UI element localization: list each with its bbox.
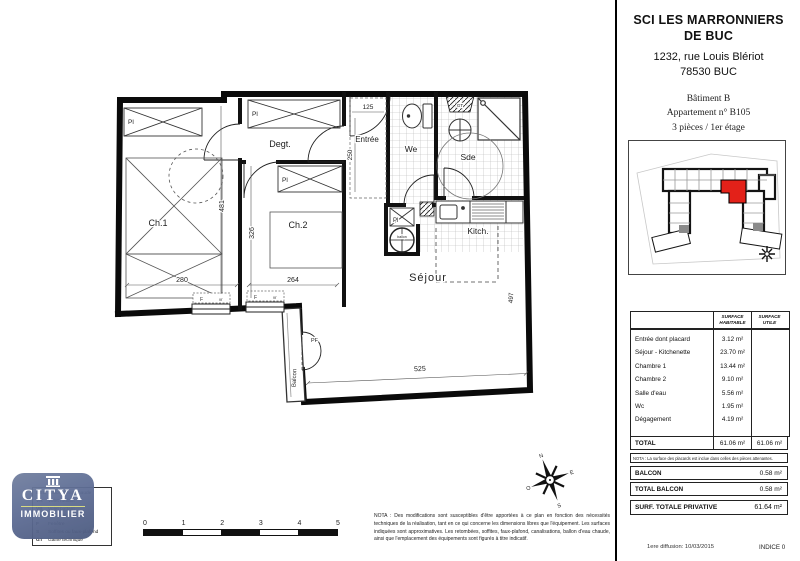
- logo-name: CITYA: [12, 487, 94, 505]
- svg-text:Pl: Pl: [128, 119, 134, 126]
- placards: [124, 100, 414, 226]
- ballon-label: ballon: [397, 235, 407, 239]
- row-habitable: 4.19 m²: [714, 416, 751, 429]
- svg-text:125: 125: [363, 104, 374, 111]
- agency-logo: CITYA IMMOBILIER: [12, 473, 94, 539]
- kitchen-counter: [436, 201, 523, 223]
- col-habitable: SURFACE HABITABLE: [713, 312, 751, 328]
- row-label: Chambre 1: [631, 363, 713, 376]
- room-sde: Sde: [460, 152, 475, 162]
- company-name: SCI LES MARRONNIERS DE BUC: [617, 12, 800, 45]
- surface-table-header: SURFACE HABITABLE SURFACE UTILE: [631, 312, 789, 330]
- svg-text:326: 326: [249, 227, 256, 239]
- logo-subtitle: IMMOBILIER: [12, 509, 94, 519]
- compass-o: O: [526, 485, 532, 492]
- svg-text:Pl: Pl: [282, 177, 288, 184]
- col-utile: SURFACE UTILE: [751, 312, 787, 328]
- surface-table-body: Entrée dont placard Séjour - Kitchenette…: [631, 330, 789, 436]
- svg-text:Pl: Pl: [393, 218, 398, 224]
- row-habitable: 1.95 m²: [714, 403, 751, 416]
- balcony-label: Balcon: [292, 369, 299, 388]
- column-icon: [45, 476, 61, 487]
- compass-s: S: [557, 503, 563, 510]
- surface-table: SURFACE HABITABLE SURFACE UTILE Entrée d…: [630, 311, 790, 437]
- shower: [478, 98, 520, 140]
- privative-row: SURF. TOTALE PRIVATIVE 61.64 m²: [630, 500, 788, 515]
- privative-value: 61.64 m²: [754, 504, 787, 511]
- balcon-label: BALCON: [631, 470, 661, 477]
- highlighted-unit: [721, 180, 746, 203]
- svg-text:497: 497: [508, 292, 515, 303]
- gt-label: GT: [457, 103, 464, 108]
- row-label: Entrée dont placard: [631, 336, 713, 349]
- row-label: Wc: [631, 403, 713, 416]
- svg-text:280: 280: [176, 277, 188, 284]
- indice-label: INDICE 0: [759, 544, 785, 551]
- diffusion-date: 1ere diffusion: 10/03/2015: [647, 544, 714, 550]
- scale-bar-segments: [143, 529, 338, 536]
- svg-text:vr: vr: [273, 295, 277, 300]
- compass-rose: N S E O: [526, 452, 574, 512]
- room-entree: Entrée: [355, 135, 379, 144]
- svg-text:F: F: [200, 297, 203, 303]
- svg-text:264: 264: [287, 277, 299, 284]
- total-balcon-row: TOTAL BALCON 0.58 m²: [630, 482, 788, 496]
- pf-label: PF: [311, 338, 319, 344]
- scale-ticks: 0 1 2 3 4 5: [143, 520, 340, 527]
- row-habitable: 13.44 m²: [714, 363, 751, 376]
- svg-text:525: 525: [414, 366, 426, 374]
- total-balcon-label: TOTAL BALCON: [631, 486, 683, 493]
- room-wc: We: [405, 144, 418, 154]
- location-map: [628, 140, 786, 275]
- table-nota: NOTA : La surface des placards est inclu…: [630, 453, 788, 463]
- svg-text:Pl: Pl: [252, 111, 258, 118]
- floor-plan: GT Balcon PF Pl Pl Pl Pl: [0, 0, 617, 561]
- compass-e: E: [569, 470, 574, 477]
- room-sejour: Séjour: [409, 272, 447, 284]
- total-label: TOTAL: [631, 440, 713, 447]
- row-label: Dégagement: [631, 416, 713, 429]
- entree-placard-zone: [350, 98, 386, 198]
- room-ch1: Ch.1: [148, 218, 167, 228]
- total-balcon-value: 0.58 m²: [760, 486, 787, 493]
- room-degt: Degt.: [269, 139, 291, 149]
- total-utile: 61.06 m²: [751, 437, 787, 449]
- row-habitable: 9.10 m²: [714, 376, 751, 389]
- room-ch2: Ch.2: [288, 220, 307, 230]
- toilet: [403, 104, 433, 128]
- row-label: Salle d'eau: [631, 390, 713, 403]
- logo-divider: [21, 506, 85, 507]
- row-label: Séjour - Kitchenette: [631, 349, 713, 362]
- site-address: 1232, rue Louis Blériot 78530 BUC: [617, 50, 800, 80]
- building-outline: [652, 169, 782, 252]
- plan-disclaimer: NOTA : Des modifications sont susceptibl…: [374, 513, 610, 544]
- row-habitable: 3.12 m²: [714, 336, 751, 349]
- row-utile: [752, 336, 787, 349]
- scale-bar: 0 1 2 3 4 5: [143, 520, 343, 536]
- room-kitch: Kitch.: [467, 226, 488, 236]
- row-habitable: 5.56 m²: [714, 390, 751, 403]
- svg-text:vr: vr: [219, 297, 223, 302]
- svg-text:F: F: [254, 295, 257, 301]
- building-label: Bâtiment B: [617, 92, 800, 106]
- apartment-info: Bâtiment B Appartement n° B105 3 pièces …: [617, 92, 800, 135]
- water-heater: ballon: [390, 228, 414, 252]
- row-label: Chambre 2: [631, 376, 713, 389]
- apartment-label: Appartement n° B105: [617, 106, 800, 120]
- compass-n: N: [539, 453, 545, 460]
- balcon-value: 0.58 m²: [760, 470, 787, 477]
- total-row: TOTAL 61.06 m² 61.06 m²: [630, 436, 788, 450]
- svg-text:250: 250: [347, 149, 354, 160]
- title-panel: SCI LES MARRONNIERS DE BUC 1232, rue Lou…: [617, 0, 800, 561]
- svg-text:481: 481: [219, 200, 226, 212]
- balcon-row: BALCON 0.58 m²: [630, 466, 788, 480]
- floor-label: 3 pièces / 1er étage: [617, 121, 800, 135]
- total-habitable: 61.06 m²: [713, 437, 751, 449]
- privative-label: SURF. TOTALE PRIVATIVE: [631, 504, 717, 511]
- plan-sheet: GT Balcon PF Pl Pl Pl Pl: [0, 0, 800, 561]
- row-habitable: 23.70 m²: [714, 349, 751, 362]
